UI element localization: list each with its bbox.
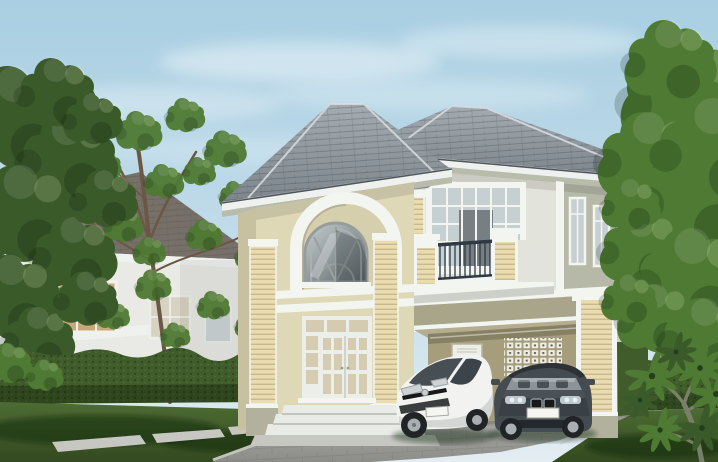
license-plate (527, 408, 559, 418)
door-sill (298, 398, 376, 403)
wheel (562, 416, 584, 438)
architectural-rendering (0, 0, 718, 462)
corner-trim (556, 181, 564, 301)
side-window (570, 198, 585, 264)
headlight (505, 396, 526, 404)
kidney-grille (544, 399, 555, 408)
tower-pilaster-right (370, 233, 400, 434)
balcony-post (412, 234, 440, 292)
arch-window (301, 223, 371, 288)
balcony-post (490, 228, 520, 288)
entry-door (298, 316, 376, 403)
headlight (560, 396, 581, 404)
kidney-grille (531, 399, 542, 408)
vw-badge (422, 389, 428, 395)
tower-pilaster-left (246, 239, 278, 436)
wheel (466, 409, 488, 431)
wheel (401, 412, 427, 438)
wheel (500, 418, 522, 440)
side-mirror (586, 379, 595, 385)
balcony-parapet (518, 240, 554, 282)
license-plate (426, 406, 449, 417)
scene-canvas (0, 0, 718, 462)
side-mirror (491, 379, 500, 385)
